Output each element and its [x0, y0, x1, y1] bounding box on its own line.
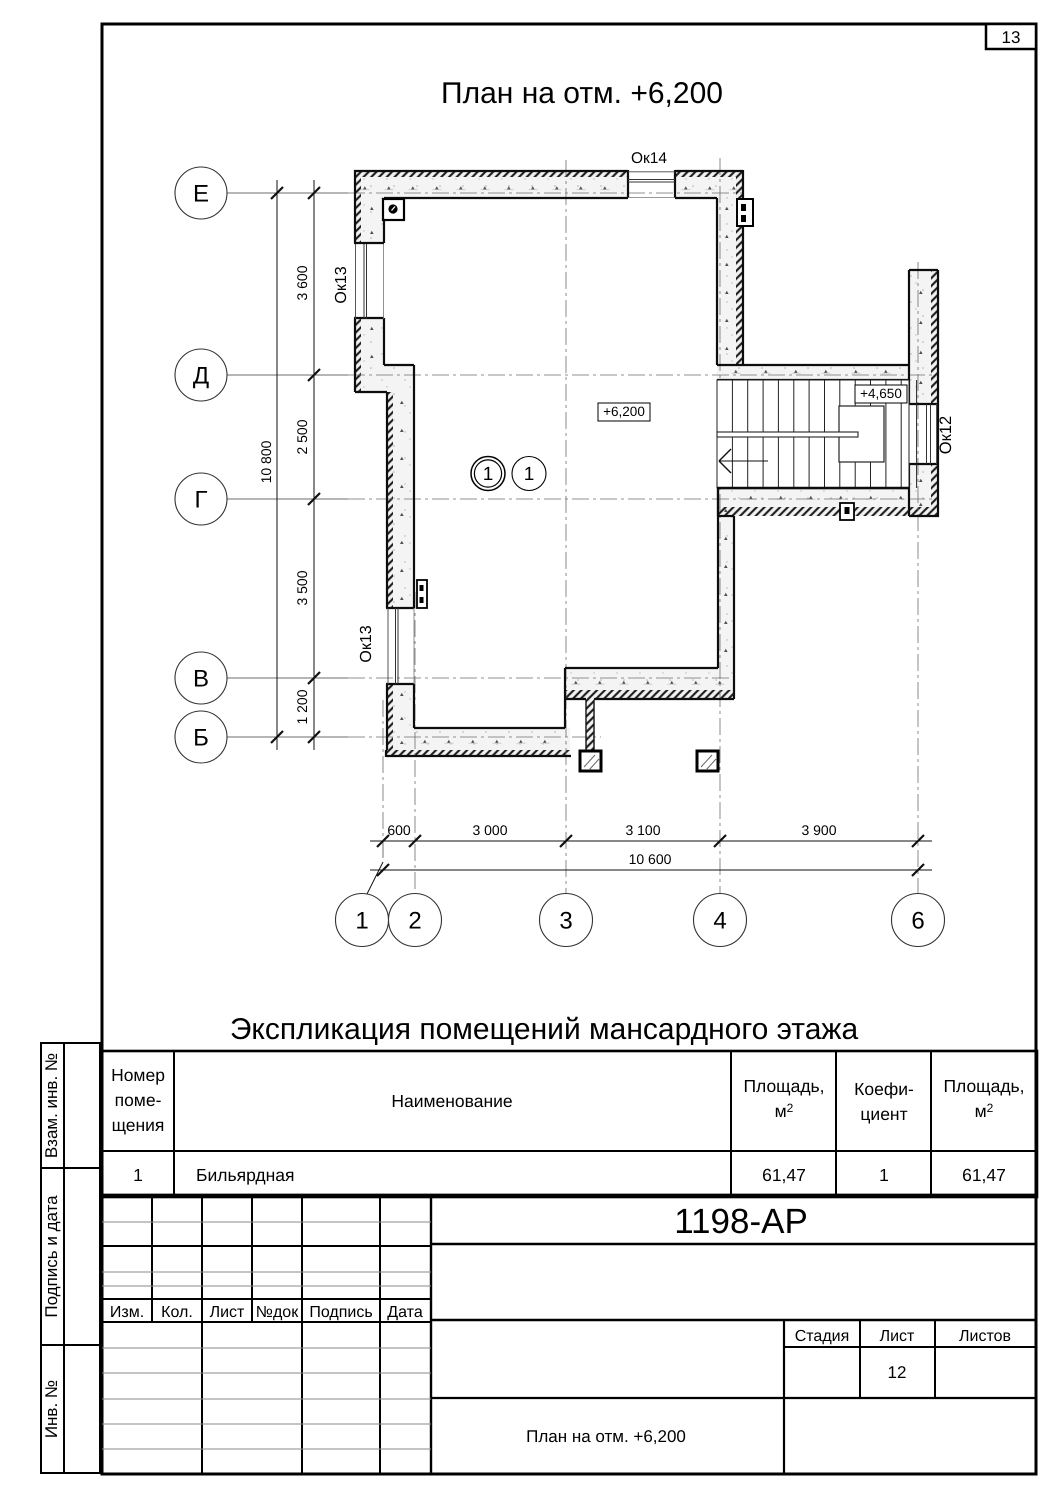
svg-text:Б: Б [193, 724, 209, 751]
svg-text:Номер: Номер [111, 1065, 165, 1085]
svg-text:600: 600 [387, 822, 411, 838]
svg-text:Дата: Дата [387, 1304, 423, 1321]
svg-text:3 000: 3 000 [472, 822, 507, 838]
svg-text:12: 12 [888, 1363, 907, 1382]
svg-text:Коефи-: Коефи- [854, 1079, 914, 1099]
svg-text:Ок13: Ок13 [358, 625, 375, 662]
svg-text:Ок13: Ок13 [333, 266, 350, 303]
svg-text:Лист: Лист [210, 1304, 245, 1321]
svg-text:1: 1 [133, 1165, 143, 1185]
svg-text:4: 4 [713, 907, 726, 934]
svg-text:План на отм. +6,200: План на отм. +6,200 [526, 1427, 686, 1446]
svg-text:1198-АР: 1198-АР [674, 1202, 808, 1241]
svg-text:61,47: 61,47 [762, 1165, 806, 1185]
svg-text:3 900: 3 900 [801, 822, 836, 838]
svg-text:Е: Е [193, 180, 209, 207]
svg-text:Взам. инв. №: Взам. инв. № [42, 1053, 61, 1158]
svg-text:1: 1 [524, 464, 535, 485]
svg-text:Лист: Лист [880, 1328, 915, 1345]
svg-text:61,47: 61,47 [962, 1165, 1006, 1185]
svg-text:6: 6 [911, 907, 924, 934]
svg-text:3 500: 3 500 [294, 570, 310, 605]
svg-text:Ок14: Ок14 [631, 150, 667, 167]
svg-text:3 600: 3 600 [294, 265, 310, 300]
svg-text:поме-: поме- [115, 1090, 162, 1110]
svg-text:1 200: 1 200 [294, 689, 310, 724]
svg-text:+6,200: +6,200 [603, 404, 645, 419]
svg-text:щения: щения [112, 1115, 165, 1135]
svg-text:2: 2 [408, 907, 421, 934]
svg-text:В: В [193, 665, 209, 692]
svg-text:Инв. №: Инв. № [42, 1380, 61, 1438]
svg-text:Площадь,: Площадь, [743, 1076, 824, 1096]
svg-text:1: 1 [355, 907, 368, 934]
svg-text:Подпись: Подпись [309, 1304, 372, 1321]
svg-text:Кол.: Кол. [161, 1304, 193, 1321]
svg-text:2 500: 2 500 [294, 419, 310, 454]
svg-text:Подпись и дата: Подпись и дата [42, 1195, 61, 1318]
svg-text:1: 1 [879, 1165, 889, 1185]
svg-text:Изм.: Изм. [110, 1304, 144, 1321]
svg-text:циент: циент [860, 1104, 907, 1124]
svg-text:+4,650: +4,650 [860, 386, 902, 401]
svg-text:Г: Г [195, 486, 208, 513]
svg-text:Ок12: Ок12 [937, 416, 955, 454]
svg-text:Стадия: Стадия [795, 1328, 850, 1345]
svg-text:План на отм. +6,200: План на отм. +6,200 [441, 77, 723, 110]
svg-text:Наименование: Наименование [391, 1091, 512, 1111]
svg-text:3: 3 [559, 907, 572, 934]
svg-text:10 600: 10 600 [629, 851, 672, 867]
svg-text:10 800: 10 800 [258, 440, 274, 483]
svg-text:3 100: 3 100 [625, 822, 660, 838]
svg-text:Д: Д [193, 362, 209, 389]
svg-text:№док: №док [256, 1304, 299, 1321]
svg-text:13: 13 [1002, 28, 1021, 47]
svg-text:Листов: Листов [959, 1328, 1011, 1345]
svg-text:Площадь,: Площадь, [943, 1076, 1024, 1096]
svg-text:Экспликация помещений мансардн: Экспликация помещений мансардного этажа [230, 1013, 859, 1046]
svg-text:1: 1 [483, 464, 494, 485]
svg-text:Бильярдная: Бильярдная [196, 1165, 294, 1185]
